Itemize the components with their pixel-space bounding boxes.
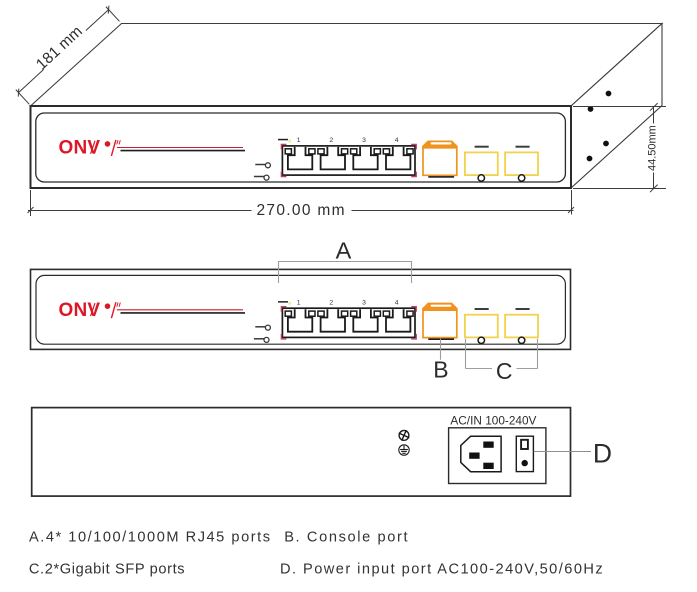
svg-text:D. Power input port AC100-240V: D. Power input port AC100-240V,50/60Hz <box>280 561 603 577</box>
svg-text:B: B <box>433 356 448 382</box>
svg-text:44.50mm: 44.50mm <box>646 125 658 171</box>
svg-text:AC/IN 100-240V: AC/IN 100-240V <box>450 413 536 427</box>
svg-text:A: A <box>336 238 352 264</box>
svg-text:C.2*Gigabit SFP ports: C.2*Gigabit SFP ports <box>29 561 185 577</box>
svg-text:270.00 mm: 270.00 mm <box>257 202 345 219</box>
svg-text:C: C <box>496 358 513 384</box>
svg-text:A.4* 10/100/1000M RJ45 ports: A.4* 10/100/1000M RJ45 ports <box>29 530 270 546</box>
svg-text:D: D <box>593 438 612 468</box>
